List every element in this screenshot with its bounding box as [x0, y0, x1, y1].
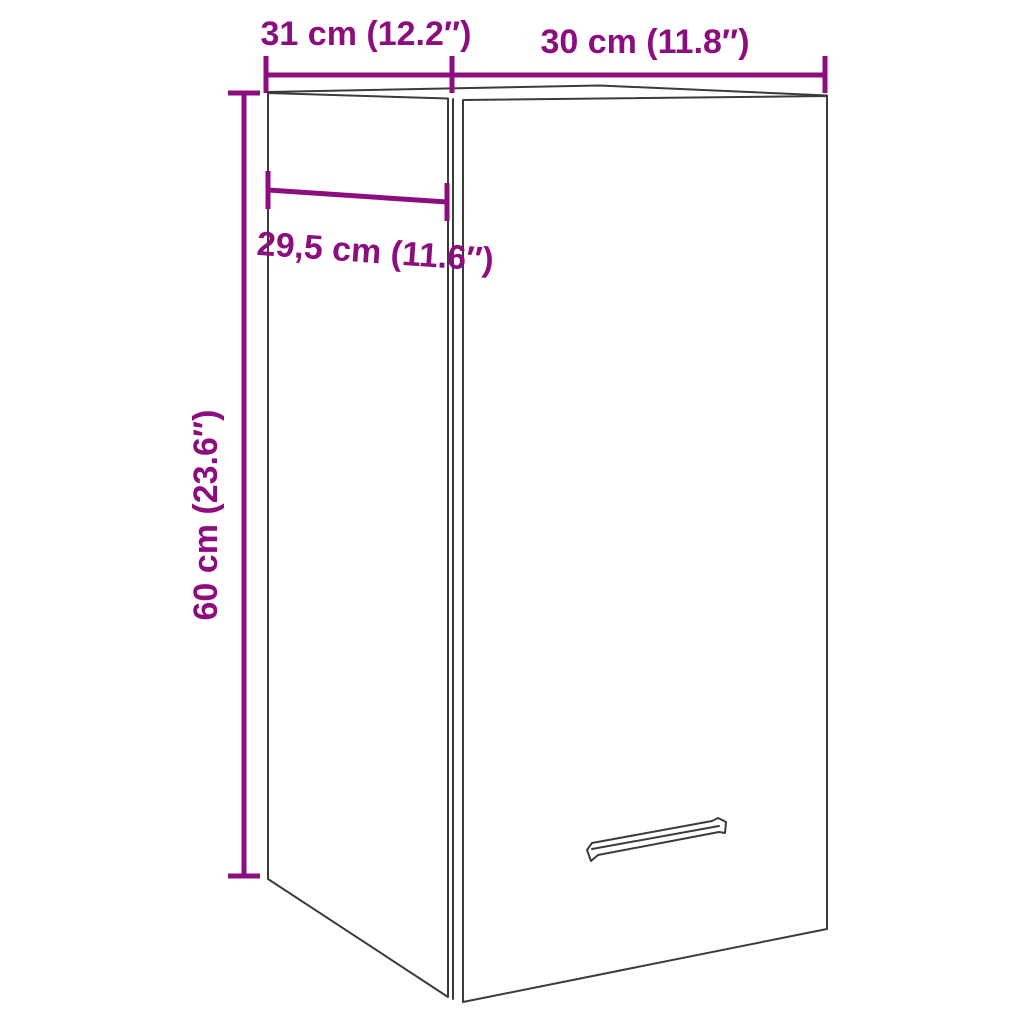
door-handle-edge-line [592, 826, 719, 849]
label-width-top: 30 cm (11.8″) [540, 23, 749, 61]
inner-depth-dimension-line [268, 190, 447, 202]
dimension-lines [228, 56, 825, 876]
cabinet-top-back-edge [268, 86, 827, 96]
label-depth-top: 31 cm (12.2″) [261, 15, 472, 53]
label-height: 60 cm (23.6″) [187, 410, 225, 621]
cabinet-dimension-drawing: 31 cm (12.2″) 30 cm (11.8″) 29,5 cm (11.… [0, 0, 1024, 1024]
door-handle [587, 818, 726, 861]
product-dimension-diagram: 31 cm (12.2″) 30 cm (11.8″) 29,5 cm (11.… [0, 0, 1024, 1024]
dimension-labels: 31 cm (12.2″) 30 cm (11.8″) 29,5 cm (11.… [187, 15, 750, 620]
label-inner-depth: 29,5 cm (11.6″) [256, 225, 496, 279]
cabinet-wireframe [268, 86, 827, 1003]
cabinet-door-panel [463, 96, 827, 1002]
